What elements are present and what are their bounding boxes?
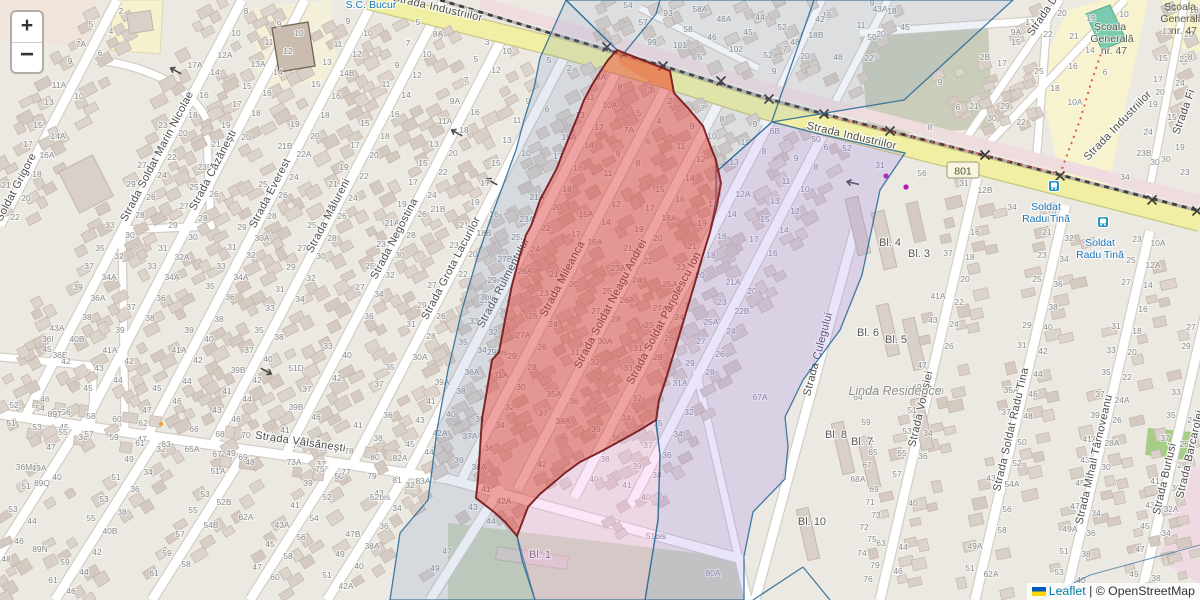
svg-text:22: 22 xyxy=(438,167,448,177)
svg-text:38: 38 xyxy=(82,312,92,322)
svg-text:25: 25 xyxy=(1032,274,1042,284)
svg-text:34: 34 xyxy=(295,294,305,304)
svg-text:53: 53 xyxy=(99,494,109,504)
svg-text:15: 15 xyxy=(418,158,428,168)
svg-text:23: 23 xyxy=(1180,167,1190,177)
svg-text:26: 26 xyxy=(944,341,954,351)
svg-text:3: 3 xyxy=(485,37,490,47)
svg-text:13: 13 xyxy=(322,57,332,67)
svg-text:26: 26 xyxy=(436,311,446,321)
svg-text:41: 41 xyxy=(353,420,363,430)
svg-text:17: 17 xyxy=(23,139,33,149)
svg-text:38: 38 xyxy=(214,314,224,324)
svg-text:40B: 40B xyxy=(69,334,84,344)
svg-text:74: 74 xyxy=(857,548,867,558)
svg-text:14A: 14A xyxy=(50,131,65,141)
svg-text:22: 22 xyxy=(10,212,20,222)
svg-text:Școala: Școala xyxy=(1094,21,1126,33)
svg-text:17: 17 xyxy=(232,99,242,109)
svg-text:11: 11 xyxy=(382,79,391,89)
svg-text:20: 20 xyxy=(448,148,458,158)
svg-text:79: 79 xyxy=(870,560,880,570)
svg-text:37: 37 xyxy=(244,345,254,355)
svg-text:47B: 47B xyxy=(345,529,360,539)
svg-text:57: 57 xyxy=(84,429,94,439)
svg-text:51A: 51A xyxy=(210,466,225,476)
svg-text:36: 36 xyxy=(130,484,140,494)
svg-text:37: 37 xyxy=(1160,433,1170,443)
svg-text:28: 28 xyxy=(406,230,416,240)
svg-text:22: 22 xyxy=(167,152,177,162)
svg-text:30: 30 xyxy=(125,230,135,240)
svg-text:18: 18 xyxy=(320,110,330,120)
svg-text:19: 19 xyxy=(470,197,480,207)
svg-text:38: 38 xyxy=(1151,573,1161,583)
svg-text:51D: 51D xyxy=(288,363,304,373)
svg-text:58: 58 xyxy=(997,525,1007,535)
svg-text:32: 32 xyxy=(114,251,124,261)
svg-text:Linda Residence: Linda Residence xyxy=(848,384,941,398)
svg-text:15: 15 xyxy=(1011,37,1021,47)
svg-text:34: 34 xyxy=(1120,172,1130,182)
svg-text:34A: 34A xyxy=(233,272,248,282)
svg-text:49: 49 xyxy=(335,549,345,559)
svg-text:29: 29 xyxy=(286,262,296,272)
svg-text:24: 24 xyxy=(1143,127,1153,137)
svg-text:56: 56 xyxy=(296,532,306,542)
svg-text:18: 18 xyxy=(251,108,261,118)
svg-text:36: 36 xyxy=(379,521,389,531)
svg-text:24: 24 xyxy=(949,319,959,329)
svg-text:S.C. Bucur: S.C. Bucur xyxy=(346,0,397,11)
svg-text:46: 46 xyxy=(14,536,24,546)
svg-text:35: 35 xyxy=(95,243,105,253)
svg-text:11: 11 xyxy=(334,39,343,49)
svg-text:58: 58 xyxy=(181,559,191,569)
svg-text:42A: 42A xyxy=(338,581,353,591)
svg-text:43: 43 xyxy=(94,363,104,373)
svg-text:38: 38 xyxy=(274,332,284,342)
svg-text:10: 10 xyxy=(294,28,304,38)
svg-text:Generală: Generală xyxy=(1090,33,1133,45)
svg-text:24: 24 xyxy=(157,170,167,180)
svg-text:26: 26 xyxy=(417,209,427,219)
svg-text:89N: 89N xyxy=(32,544,48,554)
svg-text:Generală: Generală xyxy=(1160,13,1200,25)
svg-text:11: 11 xyxy=(513,115,522,125)
svg-text:13: 13 xyxy=(429,139,439,149)
svg-text:33: 33 xyxy=(1106,345,1116,355)
svg-text:29: 29 xyxy=(1181,341,1191,351)
svg-text:4: 4 xyxy=(109,26,114,36)
svg-text:22: 22 xyxy=(1043,29,1053,39)
svg-text:63: 63 xyxy=(161,439,171,449)
svg-text:31: 31 xyxy=(227,242,237,252)
svg-text:73: 73 xyxy=(871,510,881,520)
svg-text:55: 55 xyxy=(897,448,907,458)
svg-text:Bl. 5: Bl. 5 xyxy=(885,334,907,346)
svg-text:65A: 65A xyxy=(184,444,199,454)
svg-text:32: 32 xyxy=(1064,233,1074,243)
svg-text:40: 40 xyxy=(263,354,273,364)
svg-text:34A: 34A xyxy=(164,272,179,282)
svg-text:41A: 41A xyxy=(930,291,945,301)
svg-text:31: 31 xyxy=(406,319,416,329)
svg-text:47: 47 xyxy=(142,405,152,415)
svg-text:52B: 52B xyxy=(216,497,231,507)
svg-text:26: 26 xyxy=(278,190,288,200)
svg-text:9A: 9A xyxy=(1011,27,1022,37)
svg-text:30: 30 xyxy=(1161,154,1171,164)
svg-text:63: 63 xyxy=(876,538,886,548)
svg-text:24: 24 xyxy=(427,190,437,200)
svg-text:24: 24 xyxy=(289,172,299,182)
svg-text:19: 19 xyxy=(221,120,231,130)
svg-text:66: 66 xyxy=(189,424,199,434)
svg-text:57: 57 xyxy=(175,529,185,539)
svg-text:40: 40 xyxy=(908,498,918,508)
svg-text:31: 31 xyxy=(1111,321,1121,331)
svg-text:44: 44 xyxy=(1033,369,1043,379)
svg-text:12: 12 xyxy=(283,46,293,56)
svg-text:35: 35 xyxy=(1166,410,1176,420)
svg-text:Radu Tină: Radu Tină xyxy=(1022,213,1070,225)
svg-text:53: 53 xyxy=(32,422,42,432)
svg-text:nr. 47: nr. 47 xyxy=(1171,25,1197,37)
svg-text:35: 35 xyxy=(385,362,395,372)
svg-text:53: 53 xyxy=(200,489,210,499)
svg-text:61: 61 xyxy=(48,575,58,585)
svg-text:33: 33 xyxy=(1171,387,1181,397)
svg-text:47: 47 xyxy=(1135,544,1145,554)
svg-text:35: 35 xyxy=(1101,367,1111,377)
svg-text:30: 30 xyxy=(316,251,326,261)
svg-text:Soldat: Soldat xyxy=(1031,201,1061,213)
svg-text:26: 26 xyxy=(337,211,347,221)
svg-text:32A: 32A xyxy=(174,252,189,262)
svg-text:17: 17 xyxy=(480,178,490,188)
svg-text:36: 36 xyxy=(1053,279,1063,289)
svg-text:49: 49 xyxy=(1129,569,1139,579)
svg-text:80: 80 xyxy=(370,452,380,462)
svg-text:35: 35 xyxy=(205,281,215,291)
svg-text:58: 58 xyxy=(86,411,96,421)
svg-text:42: 42 xyxy=(124,356,134,366)
svg-text:Bl. 4: Bl. 4 xyxy=(879,237,901,249)
svg-text:43A: 43A xyxy=(49,323,64,333)
svg-text:68A: 68A xyxy=(850,474,865,484)
svg-text:42: 42 xyxy=(252,375,262,385)
svg-text:9: 9 xyxy=(395,60,400,70)
svg-text:10A: 10A xyxy=(1067,97,1082,107)
svg-text:20: 20 xyxy=(178,128,188,138)
svg-text:62A: 62A xyxy=(983,569,998,579)
svg-text:45: 45 xyxy=(265,539,275,549)
svg-text:6: 6 xyxy=(956,102,961,112)
svg-text:46: 46 xyxy=(231,414,241,424)
svg-text:30A: 30A xyxy=(412,352,427,362)
svg-text:17: 17 xyxy=(1153,74,1163,84)
svg-text:56: 56 xyxy=(61,407,71,417)
svg-text:30A: 30A xyxy=(254,233,269,243)
svg-text:33: 33 xyxy=(105,220,115,230)
svg-text:37: 37 xyxy=(302,384,312,394)
svg-text:34: 34 xyxy=(143,467,153,477)
svg-text:53: 53 xyxy=(8,504,18,514)
svg-text:37: 37 xyxy=(126,302,136,312)
svg-text:28: 28 xyxy=(327,233,337,243)
svg-text:57: 57 xyxy=(892,469,902,479)
svg-text:21: 21 xyxy=(969,101,979,111)
svg-text:20: 20 xyxy=(960,274,970,284)
svg-text:15: 15 xyxy=(491,158,501,168)
svg-text:67: 67 xyxy=(862,460,872,470)
svg-text:40: 40 xyxy=(342,350,352,360)
svg-text:17A: 17A xyxy=(187,60,202,70)
svg-text:51: 51 xyxy=(965,563,975,573)
svg-text:58: 58 xyxy=(283,551,293,561)
svg-text:15: 15 xyxy=(242,81,252,91)
svg-text:34A: 34A xyxy=(101,272,116,282)
svg-text:29: 29 xyxy=(1000,101,1010,111)
svg-text:69: 69 xyxy=(238,452,248,462)
svg-text:49A: 49A xyxy=(31,463,46,473)
svg-text:24: 24 xyxy=(1175,78,1185,88)
svg-text:43: 43 xyxy=(415,415,425,425)
svg-text:47: 47 xyxy=(46,442,56,452)
svg-text:55: 55 xyxy=(188,505,198,515)
svg-text:32: 32 xyxy=(385,270,395,280)
svg-text:27: 27 xyxy=(355,282,365,292)
svg-text:33: 33 xyxy=(147,261,157,271)
svg-text:27: 27 xyxy=(1186,322,1196,332)
svg-text:52: 52 xyxy=(1012,458,1022,468)
svg-text:44: 44 xyxy=(79,567,89,577)
svg-text:26: 26 xyxy=(146,192,156,202)
svg-text:15: 15 xyxy=(360,118,370,128)
svg-text:20: 20 xyxy=(241,132,251,142)
svg-text:7: 7 xyxy=(464,75,469,85)
svg-text:13: 13 xyxy=(44,97,54,107)
svg-text:25: 25 xyxy=(1126,255,1136,265)
svg-text:42: 42 xyxy=(193,355,203,365)
svg-text:13: 13 xyxy=(502,135,512,145)
svg-text:8: 8 xyxy=(244,6,249,16)
svg-text:22: 22 xyxy=(954,297,964,307)
svg-text:15: 15 xyxy=(1158,53,1168,63)
svg-text:16: 16 xyxy=(331,91,341,101)
svg-text:20: 20 xyxy=(369,150,379,160)
svg-text:54: 54 xyxy=(35,403,45,413)
svg-text:Bl. 7: Bl. 7 xyxy=(851,436,873,448)
svg-text:14: 14 xyxy=(273,67,283,77)
svg-text:34: 34 xyxy=(1059,254,1069,264)
svg-text:Bl. 10: Bl. 10 xyxy=(798,516,826,528)
svg-text:39: 39 xyxy=(115,325,125,335)
svg-text:19: 19 xyxy=(339,162,349,172)
svg-text:7A: 7A xyxy=(76,39,87,49)
svg-text:20: 20 xyxy=(310,131,320,141)
svg-text:33: 33 xyxy=(216,261,226,271)
svg-text:34: 34 xyxy=(392,503,402,513)
svg-text:15: 15 xyxy=(33,120,43,130)
svg-text:8A: 8A xyxy=(433,29,444,39)
svg-text:29: 29 xyxy=(237,222,247,232)
svg-text:12: 12 xyxy=(412,70,422,80)
svg-text:Bl. 8: Bl. 8 xyxy=(825,429,847,441)
svg-text:36: 36 xyxy=(225,292,235,302)
svg-text:32: 32 xyxy=(306,273,316,283)
svg-text:59: 59 xyxy=(861,417,871,427)
svg-text:44: 44 xyxy=(242,394,252,404)
svg-text:12B: 12B xyxy=(977,185,992,195)
svg-text:60: 60 xyxy=(270,572,280,582)
svg-text:Bl. 6: Bl. 6 xyxy=(857,327,879,339)
svg-text:41: 41 xyxy=(290,500,300,510)
svg-text:70: 70 xyxy=(241,430,251,440)
svg-text:44: 44 xyxy=(424,447,434,457)
svg-text:Radu Tină: Radu Tină xyxy=(1076,249,1124,261)
svg-text:801: 801 xyxy=(954,166,972,178)
svg-text:51: 51 xyxy=(1059,546,1069,556)
svg-text:20: 20 xyxy=(21,193,31,203)
svg-text:36A: 36A xyxy=(90,293,105,303)
svg-text:60: 60 xyxy=(112,414,122,424)
svg-text:33: 33 xyxy=(265,303,275,313)
svg-text:52: 52 xyxy=(322,492,332,502)
svg-text:25: 25 xyxy=(1034,66,1044,76)
svg-text:34: 34 xyxy=(1091,508,1101,518)
svg-text:34: 34 xyxy=(1161,528,1171,538)
svg-text:10: 10 xyxy=(74,91,84,101)
svg-text:45: 45 xyxy=(405,439,415,449)
svg-text:26: 26 xyxy=(209,189,219,199)
svg-text:43: 43 xyxy=(212,405,222,415)
svg-text:62: 62 xyxy=(138,418,148,428)
svg-text:17: 17 xyxy=(408,177,418,187)
svg-text:9: 9 xyxy=(277,19,282,29)
svg-text:37: 37 xyxy=(943,248,953,258)
svg-text:42: 42 xyxy=(92,547,102,557)
svg-text:13A: 13A xyxy=(250,59,265,69)
svg-text:20: 20 xyxy=(1155,87,1165,97)
svg-text:9: 9 xyxy=(346,16,351,26)
svg-text:47: 47 xyxy=(252,562,262,572)
svg-text:89T: 89T xyxy=(48,409,63,419)
svg-text:28: 28 xyxy=(198,213,208,223)
svg-text:89Q: 89Q xyxy=(34,478,50,488)
svg-text:29: 29 xyxy=(168,220,178,230)
svg-text:18: 18 xyxy=(1050,83,1060,93)
svg-text:44: 44 xyxy=(898,542,908,552)
svg-text:17: 17 xyxy=(997,58,1007,68)
svg-text:5: 5 xyxy=(89,19,94,29)
svg-text:22: 22 xyxy=(1016,117,1026,127)
svg-text:22: 22 xyxy=(458,269,468,279)
svg-text:10: 10 xyxy=(231,28,241,38)
svg-text:40: 40 xyxy=(354,561,364,571)
svg-text:20: 20 xyxy=(1127,347,1137,357)
svg-text:33: 33 xyxy=(323,341,333,351)
svg-text:54B: 54B xyxy=(203,520,218,530)
svg-text:16: 16 xyxy=(1068,61,1078,71)
svg-text:49A: 49A xyxy=(1062,524,1077,534)
svg-text:51: 51 xyxy=(322,570,332,580)
svg-text:31: 31 xyxy=(1017,340,1027,350)
svg-text:46: 46 xyxy=(893,566,903,576)
svg-text:nr. 47: nr. 47 xyxy=(1101,45,1127,57)
svg-text:29: 29 xyxy=(1022,320,1032,330)
svg-text:61: 61 xyxy=(135,438,145,448)
svg-text:77: 77 xyxy=(341,467,351,477)
svg-text:23: 23 xyxy=(1132,234,1142,244)
svg-text:10: 10 xyxy=(422,49,432,59)
svg-text:56: 56 xyxy=(917,168,927,178)
svg-text:46: 46 xyxy=(66,586,76,596)
svg-text:36: 36 xyxy=(383,410,393,420)
svg-text:34: 34 xyxy=(374,289,384,299)
svg-text:68: 68 xyxy=(215,429,225,439)
svg-text:45: 45 xyxy=(1140,521,1150,531)
svg-text:65: 65 xyxy=(868,447,878,457)
svg-text:16: 16 xyxy=(1138,304,1148,314)
svg-text:12: 12 xyxy=(352,49,362,59)
svg-text:61: 61 xyxy=(149,568,159,578)
svg-text:10A: 10A xyxy=(1150,238,1165,248)
svg-text:30: 30 xyxy=(1150,157,1160,167)
svg-text:79: 79 xyxy=(367,471,377,481)
svg-text:83A: 83A xyxy=(415,476,430,486)
svg-text:16A: 16A xyxy=(39,150,54,160)
svg-text:11: 11 xyxy=(265,37,274,47)
svg-text:11A: 11A xyxy=(52,80,67,90)
svg-text:6: 6 xyxy=(1103,67,1108,77)
svg-text:54: 54 xyxy=(309,513,319,523)
svg-text:16: 16 xyxy=(390,109,400,119)
svg-text:76: 76 xyxy=(863,574,873,584)
svg-text:14: 14 xyxy=(401,90,411,100)
svg-text:56: 56 xyxy=(1002,504,1012,514)
svg-text:30: 30 xyxy=(1101,462,1111,472)
svg-text:18: 18 xyxy=(1132,326,1142,336)
svg-text:40: 40 xyxy=(204,334,214,344)
svg-text:55: 55 xyxy=(86,513,96,523)
svg-text:31: 31 xyxy=(275,284,285,294)
svg-text:8: 8 xyxy=(928,122,933,132)
svg-text:82A: 82A xyxy=(392,453,407,463)
svg-text:59: 59 xyxy=(60,557,70,567)
svg-text:9A: 9A xyxy=(450,96,461,106)
svg-text:24: 24 xyxy=(348,193,358,203)
svg-text:5: 5 xyxy=(474,54,479,64)
svg-text:28: 28 xyxy=(135,210,145,220)
svg-text:39: 39 xyxy=(303,478,313,488)
svg-text:31: 31 xyxy=(959,178,969,188)
svg-text:39B: 39B xyxy=(288,402,303,412)
svg-text:2: 2 xyxy=(119,6,124,16)
svg-text:72: 72 xyxy=(859,522,869,532)
svg-text:17: 17 xyxy=(350,140,360,150)
svg-text:10: 10 xyxy=(502,46,512,56)
svg-text:52bis: 52bis xyxy=(370,492,390,502)
svg-text:28: 28 xyxy=(426,331,436,341)
svg-text:32A: 32A xyxy=(1163,504,1178,514)
svg-text:46: 46 xyxy=(311,412,321,422)
svg-text:36: 36 xyxy=(156,293,166,303)
svg-text:69: 69 xyxy=(869,484,879,494)
svg-text:28A: 28A xyxy=(1104,438,1119,448)
svg-text:45: 45 xyxy=(83,383,93,393)
